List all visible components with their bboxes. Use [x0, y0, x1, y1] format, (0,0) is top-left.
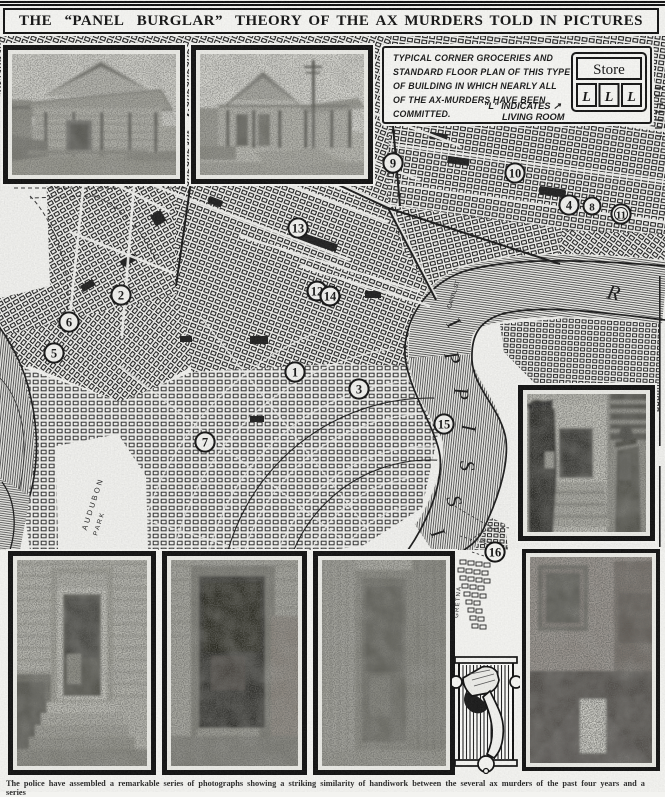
svg-text:L: L [581, 90, 591, 105]
svg-text:Store: Store [593, 62, 625, 78]
svg-text:GRETNA: GRETNA [454, 586, 463, 619]
svg-text:L: L [604, 90, 614, 105]
svg-text:L: L [626, 90, 636, 105]
svg-text:16: 16 [489, 546, 502, 560]
